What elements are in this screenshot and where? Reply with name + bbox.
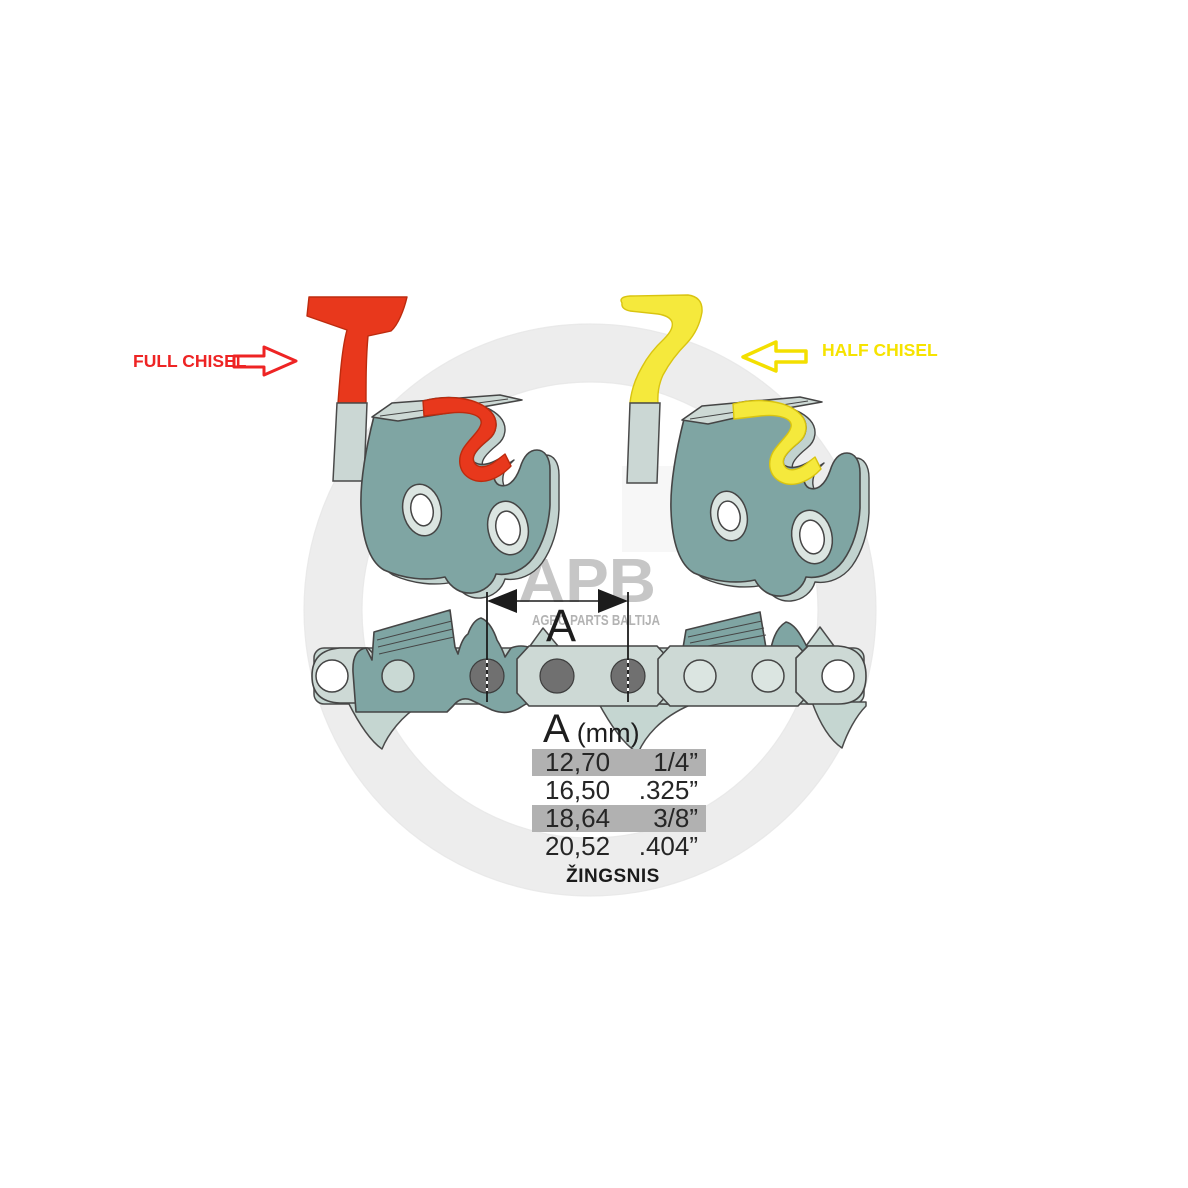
tie-strap-right [658, 646, 810, 706]
pitch-inch-value: .325” [639, 777, 698, 804]
full-chisel-label: FULL CHISEL [133, 351, 246, 372]
table-row: 16,50 .325” [532, 777, 706, 804]
left-arrow-icon [743, 342, 806, 371]
pitch-mm-value: 16,50 [545, 777, 610, 804]
full-chisel-shank [333, 403, 367, 481]
pitch-inch-value: 1/4” [653, 749, 698, 776]
chain-rivet [540, 659, 574, 693]
pitch-table-header-letter: A [543, 709, 570, 749]
pitch-inch-value: .404” [639, 833, 698, 860]
chainsaw-chain-diagram: APB AGRO PARTS BALTIJA [0, 0, 1188, 1188]
table-row: 18,64 3/8” [532, 805, 706, 832]
pitch-mm-value: 18,64 [545, 805, 610, 832]
chain-hole [822, 660, 854, 692]
dimension-letter: A [546, 600, 576, 651]
pitch-table-header: A (mm) [543, 709, 640, 749]
table-row: 12,70 1/4” [532, 749, 706, 776]
chain-hole [316, 660, 348, 692]
pitch-inch-value: 3/8” [653, 805, 698, 832]
half-chisel-cutter-link [671, 397, 869, 601]
table-row: 20,52 .404” [532, 833, 706, 860]
full-chisel-profile [307, 297, 407, 403]
pitch-mm-value: 12,70 [545, 749, 610, 776]
cutter-body [361, 398, 550, 593]
half-chisel-shank [627, 403, 660, 483]
half-chisel-label: HALF CHISEL [822, 340, 938, 361]
chain-hole [684, 660, 716, 692]
diagram-artwork: APB AGRO PARTS BALTIJA [0, 0, 1188, 1188]
chain-hole [752, 660, 784, 692]
pitch-table-header-unit: (mm) [577, 718, 640, 749]
full-chisel-cutter-link [361, 395, 559, 598]
pitch-mm-value: 20,52 [545, 833, 610, 860]
cutter-body [671, 401, 860, 596]
pitch-caption: ŽINGSNIS [523, 866, 703, 888]
chain-hole [382, 660, 414, 692]
